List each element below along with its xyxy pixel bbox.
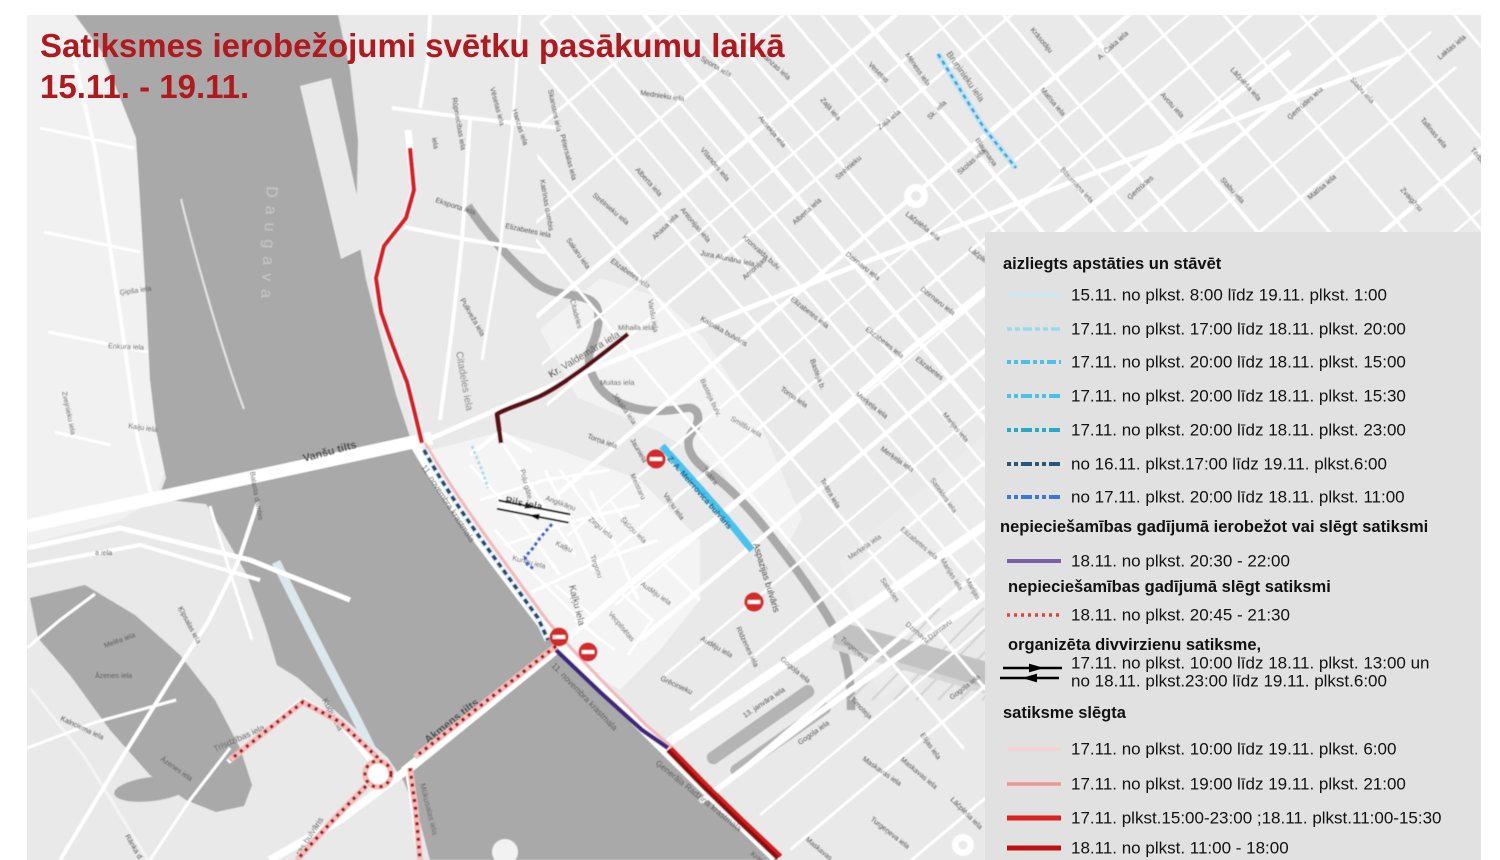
svg-text:18.11. no plkst. 20:30 - 22:00: 18.11. no plkst. 20:30 - 22:00 bbox=[1071, 552, 1290, 571]
svg-text:15.11. - 19.11.: 15.11. - 19.11. bbox=[40, 68, 249, 105]
svg-text:a iela: a iela bbox=[95, 548, 112, 557]
svg-text:satiksme slēgta: satiksme slēgta bbox=[1003, 704, 1127, 722]
svg-text:17.11. no plkst. 19:00 līdz 19: 17.11. no plkst. 19:00 līdz 19.11. plkst… bbox=[1071, 775, 1406, 794]
svg-text:Enkura iela: Enkura iela bbox=[108, 341, 144, 352]
svg-text:17.11. plkst.15:00-23:00 ;18.1: 17.11. plkst.15:00-23:00 ;18.11. plkst.1… bbox=[1071, 809, 1441, 828]
svg-text:15.11. no plkst. 8:00 līdz 19.: 15.11. no plkst. 8:00 līdz 19.11. plkst.… bbox=[1071, 286, 1387, 305]
svg-text:Āzenes iela: Āzenes iela bbox=[95, 671, 132, 680]
svg-text:organizēta divvirzienu satiksm: organizēta divvirzienu satiksme, bbox=[1008, 636, 1261, 654]
svg-text:Satiksmes ierobežojumi svētku: Satiksmes ierobežojumi svētku pasākumu l… bbox=[40, 27, 785, 64]
svg-text:nepieciešamības gadījumā ierob: nepieciešamības gadījumā ierobežot vai s… bbox=[1000, 518, 1428, 536]
svg-text:Mihaila iela: Mihaila iela bbox=[618, 323, 654, 332]
svg-text:no 17.11. plkst. 20:00 līdz 18: no 17.11. plkst. 20:00 līdz 18.11. plkst… bbox=[1071, 488, 1405, 507]
svg-text:no 16.11. plkst.17:00 līdz 19.: no 16.11. plkst.17:00 līdz 19.11. plkst.… bbox=[1071, 455, 1387, 474]
svg-text:17.11. no plkst. 10:00 līdz 19: 17.11. no plkst. 10:00 līdz 19.11. plkst… bbox=[1071, 740, 1396, 759]
svg-text:iela: iela bbox=[430, 137, 441, 150]
svg-text:nepieciešamības gadījumā slēgt: nepieciešamības gadījumā slēgt satiksmi bbox=[1008, 578, 1331, 596]
svg-text:18.11. no plkst. 11:00 - 18:00: 18.11. no plkst. 11:00 - 18:00 bbox=[1071, 839, 1289, 858]
svg-text:17.11. no plkst. 20:00 līdz 18: 17.11. no plkst. 20:00 līdz 18.11. plkst… bbox=[1071, 387, 1406, 406]
svg-text:aizliegts apstāties un stāvēt: aizliegts apstāties un stāvēt bbox=[1003, 255, 1222, 273]
svg-text:17.11. no plkst. 10:00 līdz 18: 17.11. no plkst. 10:00 līdz 18.11. plkst… bbox=[1071, 654, 1430, 673]
svg-text:18.11. no plkst. 20:45 - 21:30: 18.11. no plkst. 20:45 - 21:30 bbox=[1071, 606, 1290, 625]
svg-text:Muitas iela: Muitas iela bbox=[600, 378, 634, 387]
svg-text:17.11. no plkst. 20:00 līdz 18: 17.11. no plkst. 20:00 līdz 18.11. plkst… bbox=[1071, 353, 1406, 372]
svg-text:17.11. no plkst. 17:00 līdz 18: 17.11. no plkst. 17:00 līdz 18.11. plkst… bbox=[1071, 320, 1406, 339]
svg-text:no 18.11. plkst.23:00 līdz 19.: no 18.11. plkst.23:00 līdz 19.11. plkst.… bbox=[1071, 672, 1387, 691]
svg-text:17.11. no plkst. 20:00 līdz 18: 17.11. no plkst. 20:00 līdz 18.11. plkst… bbox=[1071, 421, 1406, 440]
